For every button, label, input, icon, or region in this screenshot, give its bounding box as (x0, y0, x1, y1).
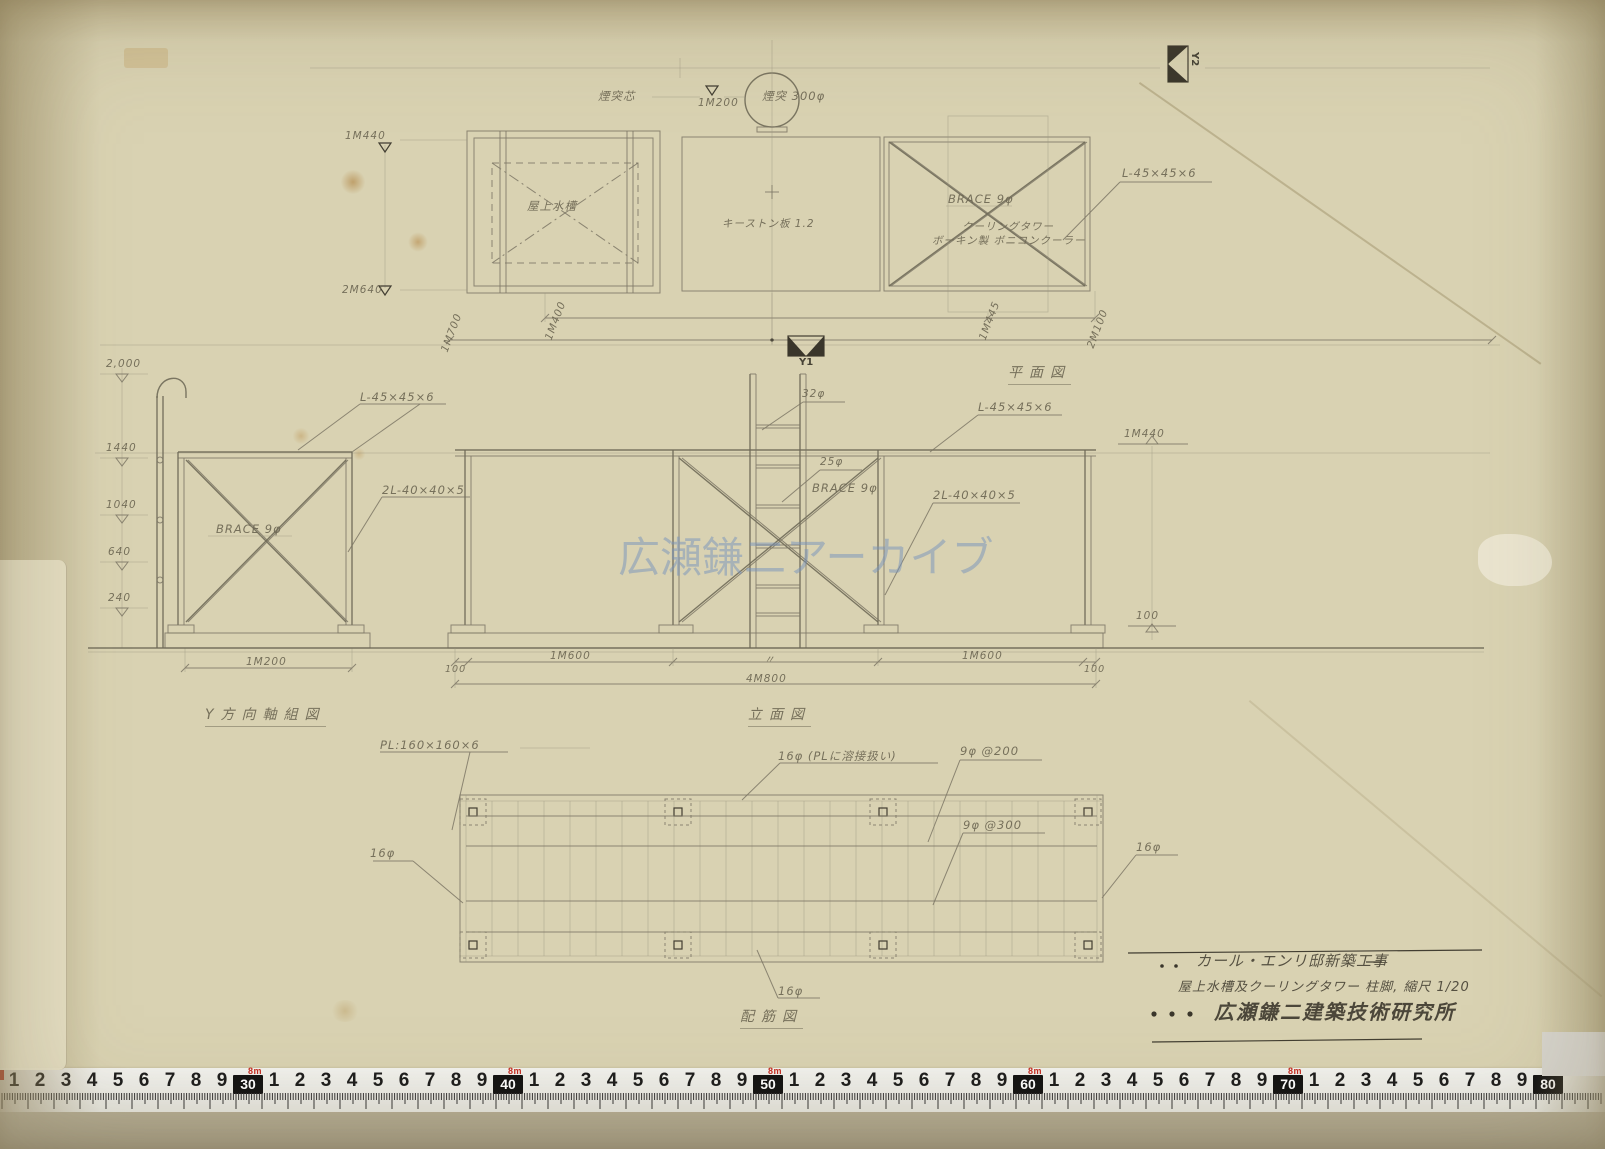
elev-level-100: 100 (1136, 610, 1159, 622)
plan-chimney-label: 煙突 300φ (762, 88, 825, 104)
plan-cooling-label-1: クーリングタワー (962, 219, 1054, 234)
ruler-minor-number: 3 (581, 1070, 592, 1092)
elev-dim-total: 4M800 (746, 673, 787, 685)
elev-brace-label: BRACE 9φ (812, 481, 878, 495)
ruler-minor-number: 8 (711, 1070, 722, 1092)
ruler-minor-number: 3 (1101, 1070, 1112, 1092)
ruler-major-number: 40 (493, 1075, 523, 1094)
section-marker-y1-label: Y1 (799, 357, 813, 368)
ruler-minor-number: 1 (529, 1070, 540, 1092)
titleblock-drawing-name: 屋上水槽及クーリングタワー 柱脚, 縮尺 1/20 (1178, 976, 1470, 995)
rebar-16-right-label: 16φ (1136, 840, 1161, 854)
ruler-minor-number: 6 (919, 1070, 930, 1092)
plan-chimney-level-label: 1M200 (698, 97, 739, 109)
ruler-minor-number: 4 (1387, 1070, 1398, 1092)
ruler-minor-number: 5 (113, 1070, 124, 1092)
ruler-minor-number: 9 (1517, 1070, 1528, 1092)
yframe-angle-label: L-45×45×6 (360, 390, 435, 404)
ruler-minor-number: 8 (451, 1070, 462, 1092)
ruler-red-start-mark (0, 1070, 4, 1080)
ruler-major-number: 70 (1273, 1075, 1303, 1094)
rebar-16-weld-label: 16φ (PLに溶接扱い) (778, 748, 897, 764)
yframe-double-angle-label: 2L-40×40×5 (382, 483, 465, 497)
ruler-minor-number: 6 (1179, 1070, 1190, 1092)
ruler-minor-number: 5 (893, 1070, 904, 1092)
ruler-minor-number: 4 (867, 1070, 878, 1092)
ruler-minor-number: 6 (399, 1070, 410, 1092)
plan-angle-label: L-45×45×6 (1122, 166, 1197, 180)
ruler-minor-number: 4 (607, 1070, 618, 1092)
yframe-brace-label: BRACE 9φ (216, 522, 282, 536)
ruler-minor-number: 5 (1413, 1070, 1424, 1092)
ruler-minor-number: 3 (321, 1070, 332, 1092)
rebar-16-left-label: 16φ (370, 846, 395, 860)
ruler-minor-number: 5 (1153, 1070, 1164, 1092)
ruler-minor-number: 7 (425, 1070, 436, 1092)
ruler-minor-number: 7 (1465, 1070, 1476, 1092)
rebar-16-bottom-label: 16φ (778, 984, 803, 998)
ruler-major-number: 50 (753, 1075, 783, 1094)
yframe-level-1040: 1040 (106, 499, 137, 511)
ruler-minor-number: 4 (87, 1070, 98, 1092)
ruler-minor-number: 7 (685, 1070, 696, 1092)
ruler-minor-number: 2 (555, 1070, 566, 1092)
elev-level-1m440: 1M440 (1124, 428, 1165, 440)
ruler-minor-number: 2 (35, 1070, 46, 1092)
ruler-minor-number: 9 (217, 1070, 228, 1092)
ruler-minor-number: 3 (841, 1070, 852, 1092)
ruler-minor-number: 8 (1231, 1070, 1242, 1092)
plan-keystone-label: キーストン板 1.2 (722, 216, 815, 231)
ruler-minor-number: 7 (1205, 1070, 1216, 1092)
ruler-minor-number: 4 (1127, 1070, 1138, 1092)
titleblock-firm-name: 広瀬鎌二建築技術研究所 (1214, 996, 1456, 1025)
archive-watermark: 広瀬鎌二アーカイブ (618, 524, 993, 585)
ruler-major-number: 60 (1013, 1075, 1043, 1094)
elev-dim-100-right: 100 (1084, 664, 1105, 675)
elev-dim-1m600-right: 1M600 (962, 650, 1003, 662)
ruler-minor-number: 8 (191, 1070, 202, 1092)
yframe-level-640: 640 (108, 546, 131, 558)
ruler-minor-number: 2 (815, 1070, 826, 1092)
titleblock-project-name: カール・エンリ邸新築工事 (1196, 950, 1388, 971)
rebar-plate-label: PL:160×160×6 (380, 738, 480, 752)
ruler-minor-number: 3 (1361, 1070, 1372, 1092)
ruler-major-number: 30 (233, 1075, 263, 1094)
ruler-minor-number: 1 (789, 1070, 800, 1092)
ruler-minor-number: 2 (1075, 1070, 1086, 1092)
ruler-minor-number: 9 (477, 1070, 488, 1092)
ruler-minor-number: 1 (269, 1070, 280, 1092)
ruler-minor-number: 1 (9, 1070, 20, 1092)
elev-title: 立面図 (748, 704, 811, 727)
plan-level-bottom: 2M640 (342, 284, 383, 296)
ruler-minor-number: 3 (61, 1070, 72, 1092)
ruler-minor-number: 4 (347, 1070, 358, 1092)
plan-tank-label: 屋上水槽 (527, 198, 577, 214)
yframe-title: Y方向軸組図 (205, 704, 326, 727)
plan-brace-label: BRACE 9φ (948, 192, 1014, 206)
rebar-9-200-label: 9φ @200 (960, 744, 1019, 758)
elev-pipe25-label: 25φ (820, 456, 843, 468)
plan-title: 平面図 (1008, 362, 1071, 385)
ruler-ticks (0, 1093, 1605, 1113)
ruler-minor-number: 8 (971, 1070, 982, 1092)
measuring-tape: 1234567898m301234567898m401234567898m501… (0, 1068, 1605, 1113)
ruler-minor-number: 9 (1257, 1070, 1268, 1092)
ruler-minor-number: 1 (1049, 1070, 1060, 1092)
ruler-minor-number: 8 (1491, 1070, 1502, 1092)
yframe-level-2000: 2,000 (106, 358, 141, 370)
plan-level-top: 1M440 (345, 130, 386, 142)
rebar-9-300-label: 9φ @300 (963, 818, 1022, 832)
ruler-minor-number: 2 (1335, 1070, 1346, 1092)
ruler-minor-number: 1 (1309, 1070, 1320, 1092)
elev-dim-ditto: 〃 (764, 652, 776, 667)
elev-dim-100-left: 100 (445, 664, 466, 675)
ruler-minor-number: 9 (737, 1070, 748, 1092)
yframe-level-240: 240 (108, 592, 131, 604)
ruler-major-number: 80 (1533, 1075, 1563, 1094)
rebar-title: 配筋図 (740, 1006, 803, 1029)
elev-dim-1m600-left: 1M600 (550, 650, 591, 662)
yframe-dim-1m200: 1M200 (246, 656, 287, 668)
elev-angle-label: L-45×45×6 (978, 400, 1053, 414)
elev-double-angle-label: 2L-40×40×5 (933, 488, 1016, 502)
ruler-minor-number: 6 (139, 1070, 150, 1092)
ruler-minor-number: 9 (997, 1070, 1008, 1092)
ruler-minor-number: 6 (1439, 1070, 1450, 1092)
plan-cooling-label-2: ボーキン製 ボニコンクーラー (932, 233, 1086, 248)
plan-chimney-center-label: 煙突芯 (598, 88, 636, 104)
elev-pipe32-label: 32φ (802, 388, 825, 400)
ruler-minor-number: 5 (633, 1070, 644, 1092)
scanned-drawing-sheet: 煙突芯 1M200 煙突 300φ 屋上水槽 キーストン板 1.2 BRACE … (0, 0, 1605, 1149)
ruler-minor-number: 2 (295, 1070, 306, 1092)
section-marker-y2-label: Y2 (1189, 52, 1200, 66)
yframe-level-1440: 1440 (106, 442, 137, 454)
ruler-minor-number: 7 (165, 1070, 176, 1092)
ruler-minor-number: 5 (373, 1070, 384, 1092)
ruler-minor-number: 6 (659, 1070, 670, 1092)
ruler-minor-number: 7 (945, 1070, 956, 1092)
